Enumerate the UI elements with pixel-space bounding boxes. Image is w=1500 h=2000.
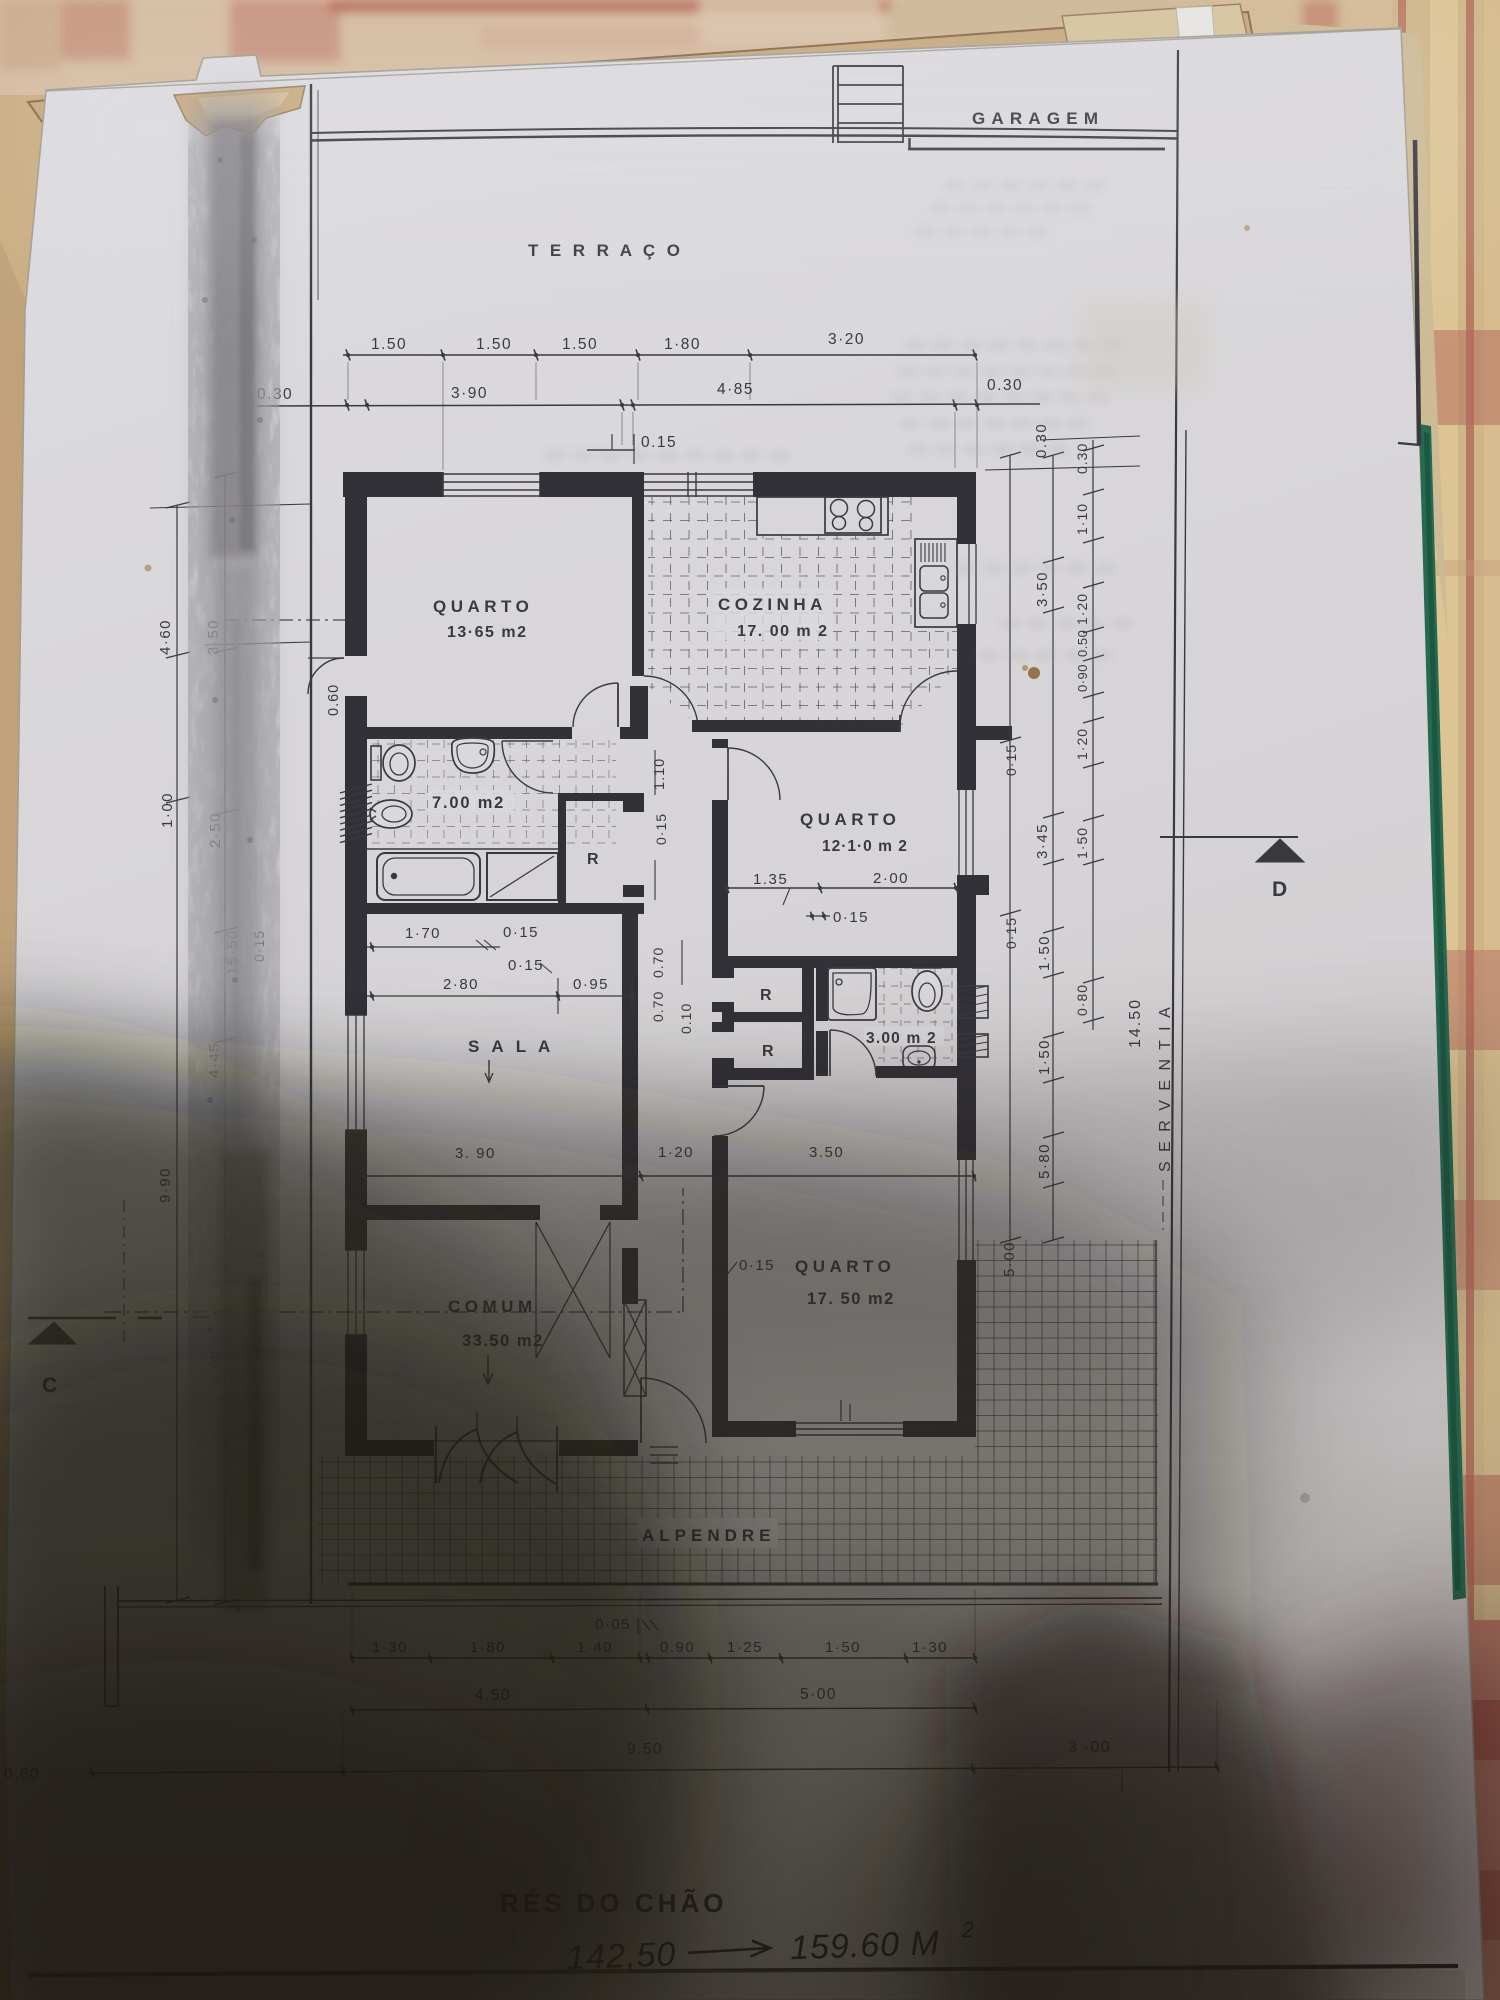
svg-text:0.30: 0.30 (987, 377, 1023, 394)
svg-text:S A L A: S A L A (468, 1037, 554, 1056)
svg-text:12·1·0 m 2: 12·1·0 m 2 (822, 838, 908, 855)
svg-text:0·15: 0·15 (508, 957, 544, 974)
svg-text:1·20: 1·20 (1074, 728, 1090, 760)
svg-text:0.15: 0.15 (641, 434, 677, 451)
svg-text:0·15: 0·15 (503, 924, 539, 941)
svg-text:1·80: 1·80 (664, 336, 701, 353)
svg-text:1.35: 1.35 (753, 871, 788, 888)
svg-text:1.50: 1.50 (562, 336, 598, 353)
svg-text:3·90: 3·90 (451, 385, 488, 402)
svg-text:0·95: 0·95 (573, 976, 609, 993)
svg-text:R: R (587, 851, 599, 868)
svg-text:1·50: 1·50 (1036, 935, 1053, 971)
svg-text:R: R (760, 987, 772, 1004)
svg-text:0·15: 0·15 (653, 813, 669, 845)
svg-text:1·50: 1·50 (1074, 827, 1090, 859)
svg-text:3·50: 3·50 (1034, 571, 1051, 607)
svg-text:0·15: 0·15 (1003, 744, 1019, 776)
svg-text:1.50: 1.50 (476, 336, 512, 353)
svg-text:1·70: 1·70 (405, 925, 441, 942)
svg-text:0.30: 0.30 (1074, 443, 1090, 474)
svg-text:14.50: 14.50 (1127, 998, 1144, 1048)
svg-text:0·15: 0·15 (833, 909, 869, 926)
svg-text:R: R (762, 1043, 774, 1060)
svg-text:17. 00 m 2: 17. 00 m 2 (737, 623, 829, 640)
svg-text:3·20: 3·20 (828, 331, 865, 348)
svg-text:1.10: 1.10 (652, 758, 668, 790)
svg-text:2·00: 2·00 (873, 870, 909, 887)
svg-text:3.00 m 2: 3.00 m 2 (866, 1030, 937, 1047)
svg-text:QUARTO: QUARTO (800, 810, 900, 829)
svg-text:0·15: 0·15 (1003, 917, 1019, 949)
svg-text:0.70: 0.70 (650, 947, 666, 978)
svg-text:4·85: 4·85 (717, 381, 754, 398)
svg-text:1·10: 1·10 (1074, 503, 1090, 535)
svg-text:QUARTO: QUARTO (433, 597, 533, 616)
svg-text:3·45: 3·45 (1034, 823, 1051, 859)
svg-text:1.50: 1.50 (371, 336, 407, 353)
svg-text:2·80: 2·80 (443, 976, 479, 993)
svg-text:0.60: 0.60 (326, 684, 342, 716)
svg-text:1·00: 1·00 (159, 792, 176, 828)
svg-text:0.10: 0.10 (678, 1003, 694, 1034)
svg-text:4·60: 4·60 (157, 619, 174, 655)
svg-text:0·90: 0·90 (1075, 664, 1090, 692)
svg-text:0.70: 0.70 (650, 991, 666, 1022)
svg-text:7.00 m2: 7.00 m2 (432, 794, 505, 812)
svg-text:COZINHA: COZINHA (718, 595, 827, 614)
svg-text:D: D (1272, 878, 1287, 901)
svg-text:0·80: 0·80 (1074, 984, 1090, 1016)
svg-text:13·65 m2: 13·65 m2 (447, 624, 528, 641)
